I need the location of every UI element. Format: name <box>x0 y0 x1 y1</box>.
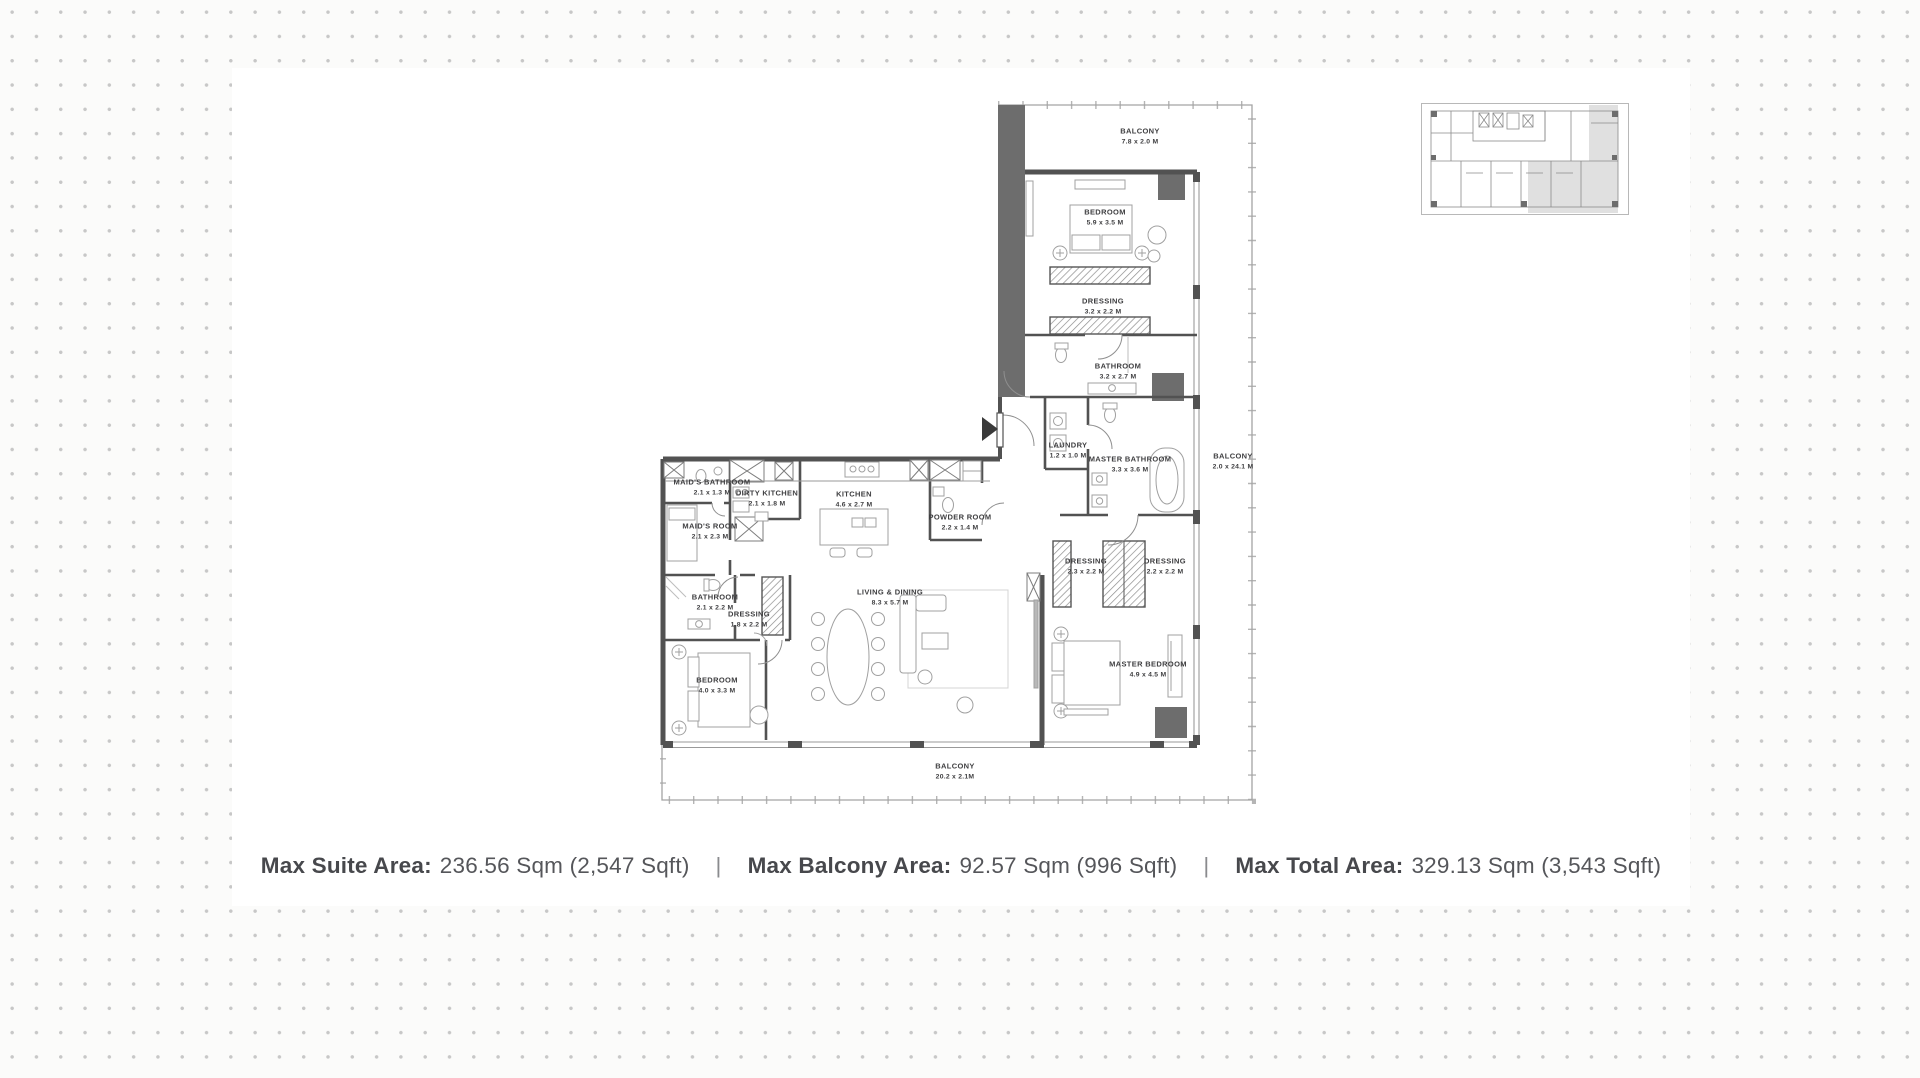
room-name: BALCONY <box>935 762 975 773</box>
room-dimensions: 4.6 x 2.7 M <box>836 501 873 511</box>
stat-value: 92.57 Sqm (996 Sqft) <box>959 853 1177 878</box>
room-label-dressing-2: DRESSING1.8 x 2.2 M <box>728 610 770 631</box>
key-plan-drawing <box>1421 103 1629 215</box>
room-dimensions: 5.9 x 3.5 M <box>1084 219 1126 229</box>
room-name: MASTER BATHROOM <box>1089 455 1172 466</box>
room-dimensions: 4.9 x 4.5 M <box>1109 671 1187 681</box>
summary-stat: Max Balcony Area:92.57 Sqm (996 Sqft) <box>748 853 1178 879</box>
summary-stat: Max Suite Area:236.56 Sqm (2,547 Sqft) <box>261 853 690 879</box>
room-dimensions: 2.1 x 1.8 M <box>736 500 798 510</box>
room-label-bedroom-2: BEDROOM4.0 x 3.3 M <box>696 676 738 697</box>
room-dimensions: 2.0 x 24.1 M <box>1213 463 1254 473</box>
room-label-master-bathroom: MASTER BATHROOM3.3 x 3.6 M <box>1089 455 1172 476</box>
room-label-dirty-kitchen: DIRTY KITCHEN2.1 x 1.8 M <box>736 489 798 510</box>
room-label-maids-room: MAID'S ROOM2.1 x 2.3 M <box>682 522 737 543</box>
room-name: DRESSING <box>1065 557 1107 568</box>
stat-label: Max Suite Area: <box>261 853 432 878</box>
room-name: MAID'S ROOM <box>682 522 737 533</box>
room-label-master-bedroom: MASTER BEDROOM4.9 x 4.5 M <box>1109 660 1187 681</box>
room-label-balcony-top: BALCONY7.8 x 2.0 M <box>1120 127 1160 148</box>
room-dimensions: 8.3 x 5.7 M <box>857 599 923 609</box>
room-name: DRESSING <box>1144 557 1186 568</box>
room-name: LAUNDRY <box>1049 441 1088 452</box>
room-name: LIVING & DINING <box>857 588 923 599</box>
room-name: DRESSING <box>1082 297 1124 308</box>
room-name: BATHROOM <box>1095 362 1141 373</box>
summary-stat: Max Total Area:329.13 Sqm (3,543 Sqft) <box>1235 853 1661 879</box>
room-name: BEDROOM <box>1084 208 1126 219</box>
room-label-dressing-4: DRESSING2.2 x 2.2 M <box>1144 557 1186 578</box>
room-dimensions: 2.3 x 2.2 M <box>1065 568 1107 578</box>
room-label-powder-room: POWDER ROOM2.2 x 1.4 M <box>928 513 991 534</box>
room-dimensions: 2.2 x 1.4 M <box>928 524 991 534</box>
room-name: BEDROOM <box>696 676 738 687</box>
floor-plan-drawing <box>660 85 1260 815</box>
room-dimensions: 20.2 x 2.1M <box>935 773 975 783</box>
room-dimensions: 3.2 x 2.2 M <box>1082 308 1124 318</box>
entry-door-leaf <box>997 413 1003 447</box>
room-name: BATHROOM <box>692 593 738 604</box>
room-name: KITCHEN <box>836 490 873 501</box>
floor-plan: BALCONY7.8 x 2.0 MBEDROOM5.9 x 3.5 MDRES… <box>660 85 1260 815</box>
area-summary: Max Suite Area:236.56 Sqm (2,547 Sqft)|M… <box>232 853 1690 879</box>
stat-value: 329.13 Sqm (3,543 Sqft) <box>1411 853 1661 878</box>
room-name: POWDER ROOM <box>928 513 991 524</box>
room-label-balcony-right: BALCONY2.0 x 24.1 M <box>1213 452 1254 473</box>
stat-label: Max Total Area: <box>1235 853 1403 878</box>
room-dimensions: 2.1 x 2.3 M <box>682 533 737 543</box>
room-name: MAID'S BATHROOM <box>674 478 751 489</box>
room-dimensions: 3.2 x 2.7 M <box>1095 373 1141 383</box>
room-name: DRESSING <box>728 610 770 621</box>
key-plan-thumbnail <box>1421 103 1629 215</box>
room-dimensions: 1.2 x 1.0 M <box>1049 452 1088 462</box>
stat-value: 236.56 Sqm (2,547 Sqft) <box>440 853 690 878</box>
stat-label: Max Balcony Area: <box>748 853 952 878</box>
room-dimensions: 4.0 x 3.3 M <box>696 687 738 697</box>
room-name: BALCONY <box>1120 127 1160 138</box>
room-dimensions: 7.8 x 2.0 M <box>1120 138 1160 148</box>
room-label-bathroom-top: BATHROOM3.2 x 2.7 M <box>1095 362 1141 383</box>
room-label-bedroom-top: BEDROOM5.9 x 3.5 M <box>1084 208 1126 229</box>
room-label-laundry: LAUNDRY1.2 x 1.0 M <box>1049 441 1088 462</box>
room-dimensions: 2.2 x 2.2 M <box>1144 568 1186 578</box>
wardrobes <box>762 267 1150 635</box>
summary-separator: | <box>716 853 722 879</box>
room-name: MASTER BEDROOM <box>1109 660 1187 671</box>
room-label-living-dining: LIVING & DINING8.3 x 5.7 M <box>857 588 923 609</box>
room-label-balcony-bottom: BALCONY20.2 x 2.1M <box>935 762 975 783</box>
room-dimensions: 1.8 x 2.2 M <box>728 621 770 631</box>
room-name: BALCONY <box>1213 452 1254 463</box>
room-label-dressing-3: DRESSING2.3 x 2.2 M <box>1065 557 1107 578</box>
summary-separator: | <box>1203 853 1209 879</box>
room-label-dressing-top: DRESSING3.2 x 2.2 M <box>1082 297 1124 318</box>
room-dimensions: 3.3 x 3.6 M <box>1089 466 1172 476</box>
entry-arrow-icon <box>982 417 998 441</box>
room-label-kitchen: KITCHEN4.6 x 2.7 M <box>836 490 873 511</box>
room-name: DIRTY KITCHEN <box>736 489 798 500</box>
